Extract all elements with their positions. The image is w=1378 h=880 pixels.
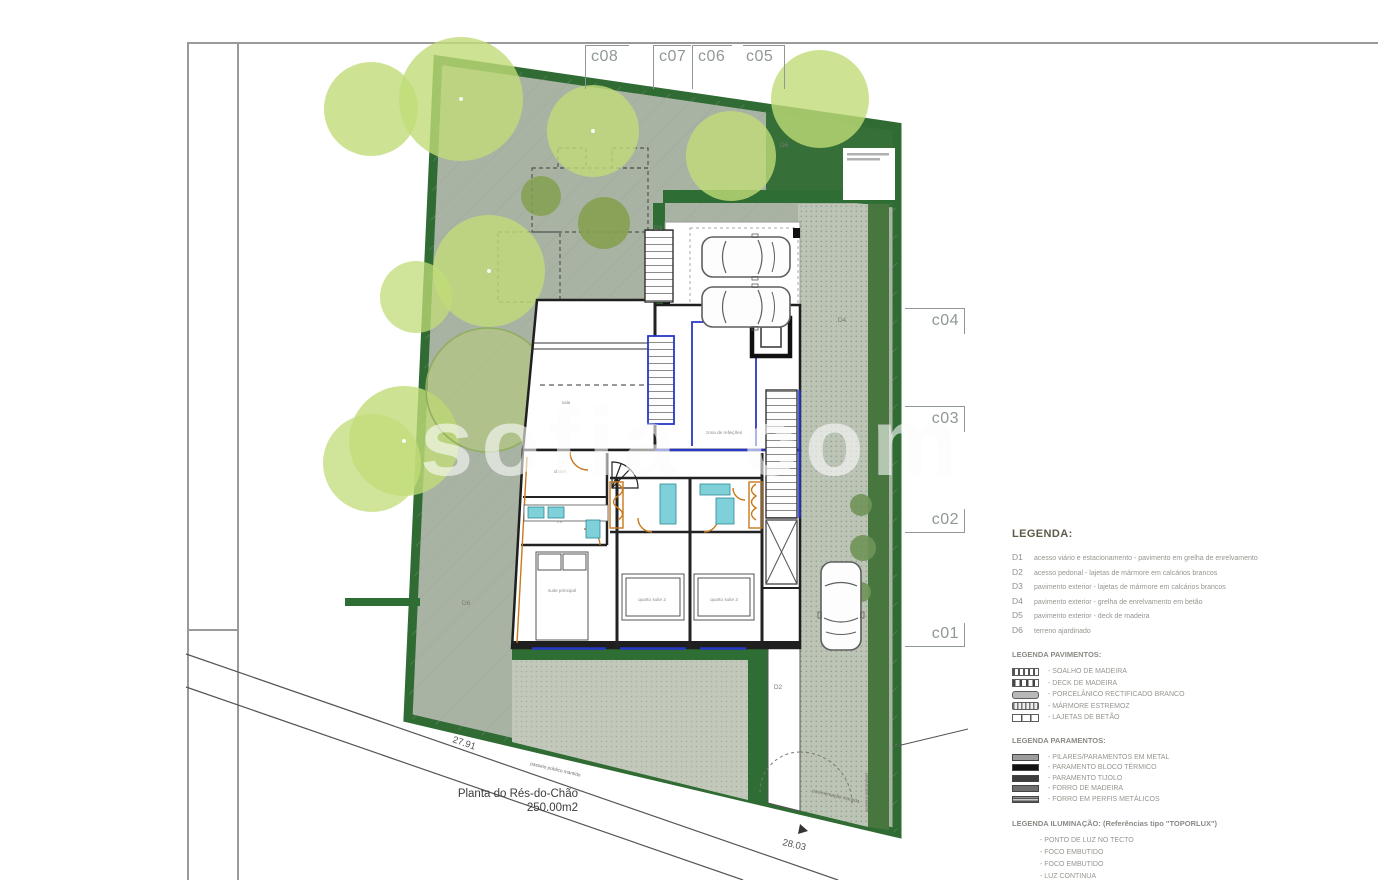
plan-title: Planta do Rés-do-Chão [393, 787, 578, 801]
section-marker-c08: c08 [585, 45, 629, 89]
architectural-sheet: { "watermark": {"part1": "sofia", "part2… [0, 0, 1378, 880]
wood-floor-swatch [1012, 668, 1039, 676]
paramento-item: - FORRO EM PERFIS METÁLICOS [1012, 796, 1372, 803]
legend-item: D2 acesso pedonal - lajetas de mármore e… [1012, 567, 1372, 577]
bush [850, 535, 876, 561]
paramento-item: - PILARES/PARAMENTOS EM METAL [1012, 754, 1372, 761]
svg-text:D3: D3 [654, 225, 663, 232]
svg-text:sala: sala [562, 400, 571, 405]
metal-profile-swatch [1012, 796, 1039, 803]
garden-path [768, 648, 800, 811]
svg-text:suite principal: suite principal [548, 588, 576, 593]
porcelain-swatch [1012, 691, 1039, 699]
section-marker-c05: c05 [743, 45, 785, 89]
svg-text:quarto suite 2: quarto suite 2 [638, 597, 666, 602]
svg-text:D2: D2 [774, 684, 783, 691]
svg-text:quarto suite 3: quarto suite 3 [710, 597, 738, 602]
tree-dark [521, 176, 561, 216]
living-block [523, 300, 655, 450]
hedge-path-side [748, 648, 768, 803]
svg-text:D4: D4 [838, 317, 847, 324]
pavimento-item: - MÁRMORE ESTREMOZ [1012, 702, 1372, 710]
tree [323, 414, 421, 512]
legend-item: D5 pavimento exterior - deck de madeira [1012, 610, 1372, 620]
concrete-slab-swatch [1012, 714, 1039, 722]
svg-text:acesso automóvel: acesso automóvel [864, 773, 870, 812]
marker-label: c02 [932, 511, 959, 528]
legend-paramentos-title: LEGENDA PARAMENTOS: [1012, 736, 1372, 745]
stair-garden [766, 390, 800, 584]
hedge-right-strip [868, 204, 889, 830]
section-marker-c06: c06 [692, 45, 732, 89]
section-marker-c01: c01 [905, 623, 965, 647]
section-marker-c02: c02 [905, 509, 965, 533]
marker-label: c06 [698, 48, 725, 65]
thermal-block-swatch [1012, 764, 1039, 771]
marker-label: c08 [591, 48, 618, 65]
pavimento-item: - DECK DE MADEIRA [1012, 679, 1372, 687]
brick-swatch [1012, 775, 1039, 782]
paramento-item: - FORRO DE MADEIRA [1012, 785, 1372, 792]
legend-title: LEGENDA: [1012, 528, 1372, 540]
svg-text:D6: D6 [780, 142, 789, 149]
stair-exterior [645, 230, 673, 302]
legend-pavimentos-title: LEGENDA PAVIMENTOS: [1012, 650, 1372, 659]
tree [380, 261, 452, 333]
hedge-small-left [345, 598, 420, 606]
section-marker-c03: c03 [905, 406, 965, 432]
paramento-item: - PARAMENTO TIJOLO [1012, 775, 1372, 782]
tree [686, 111, 776, 201]
section-marker-c04: c04 [905, 308, 965, 334]
title-block: Planta do Rés-do-Chão 250.00m2 [393, 787, 578, 815]
svg-text:zona de refeições: zona de refeições [706, 430, 743, 435]
legend-item: D3 pavimento exterior - lajetas de mármo… [1012, 581, 1372, 591]
bush [850, 494, 872, 516]
iluminacao-item: - FOCO EMBUTIDO [1040, 849, 1372, 856]
stair-interior [648, 336, 674, 424]
note-box [843, 148, 895, 200]
marker-label: c03 [932, 410, 959, 427]
section-marker-c07: c07 [653, 45, 691, 89]
legend-column: LEGENDA: D1 acesso viário e estacionamen… [1012, 528, 1372, 880]
svg-text:D6: D6 [462, 600, 471, 607]
tree [771, 50, 869, 148]
marble-swatch [1012, 702, 1039, 710]
legend-iluminacao-title: LEGENDA ILUMINAÇÃO: (Referências tipo "T… [1012, 819, 1372, 828]
paramento-item: - PARAMENTO BLOCO TÉRMICO [1012, 764, 1372, 771]
iluminacao-item: - LUZ CONTINUA [1040, 873, 1372, 880]
wood-lining-swatch [1012, 785, 1039, 792]
plan-area: 250.00m2 [393, 801, 578, 815]
pavimento-item: - LAJETAS DE BETÃO [1012, 714, 1372, 722]
iluminacao-item: - FOCO EMBUTIDO [1040, 861, 1372, 868]
tree-dark [578, 197, 630, 249]
metal-swatch [1012, 754, 1039, 761]
marker-label: c07 [659, 48, 686, 65]
pavimento-item: - SOALHO DE MADEIRA [1012, 668, 1372, 676]
marker-label: c01 [932, 625, 959, 642]
deck-swatch [1012, 679, 1039, 687]
svg-text:closet: closet [554, 469, 567, 474]
legend-item: D4 pavimento exterior - grelha de enrelv… [1012, 596, 1372, 606]
marker-label: c05 [746, 48, 773, 65]
svg-text:i.s.: i.s. [557, 519, 563, 524]
svg-text:28.03: 28.03 [781, 837, 807, 853]
marker-label: c04 [932, 312, 959, 329]
pavimento-item: - PORCELÂNICO RECTIFICADO BRANCO [1012, 691, 1372, 699]
legend-item: D6 terreno ajardinado [1012, 625, 1372, 635]
bedroom-block [512, 450, 800, 648]
legend-item: D1 acesso viário e estacionamento - pavi… [1012, 552, 1372, 562]
iluminacao-item: - PONTO DE LUZ NO TECTO [1040, 837, 1372, 844]
hedge-bottom [512, 648, 748, 660]
